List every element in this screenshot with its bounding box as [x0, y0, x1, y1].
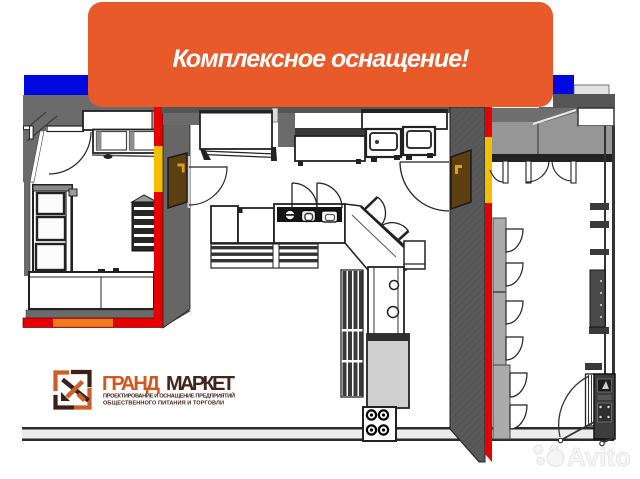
svg-text:Комплексное оснащение!: Комплексное оснащение!: [173, 45, 470, 73]
svg-text:Avito: Avito: [567, 442, 631, 472]
svg-text:ГРАНДМАРКЕТ: ГРАНДМАРКЕТ: [102, 373, 235, 395]
svg-text:ПРОЕКТИРОВАНИЕ И ОСНАЩЕНИЕ ПРЕ: ПРОЕКТИРОВАНИЕ И ОСНАЩЕНИЕ ПРЕДПРИЯТИЙ: [103, 392, 235, 400]
svg-text:ОБЩЕСТВЕННОГО ПИТАНИЯ И ТОРГОВ: ОБЩЕСТВЕННОГО ПИТАНИЯ И ТОРГОВЛИ: [103, 401, 224, 407]
